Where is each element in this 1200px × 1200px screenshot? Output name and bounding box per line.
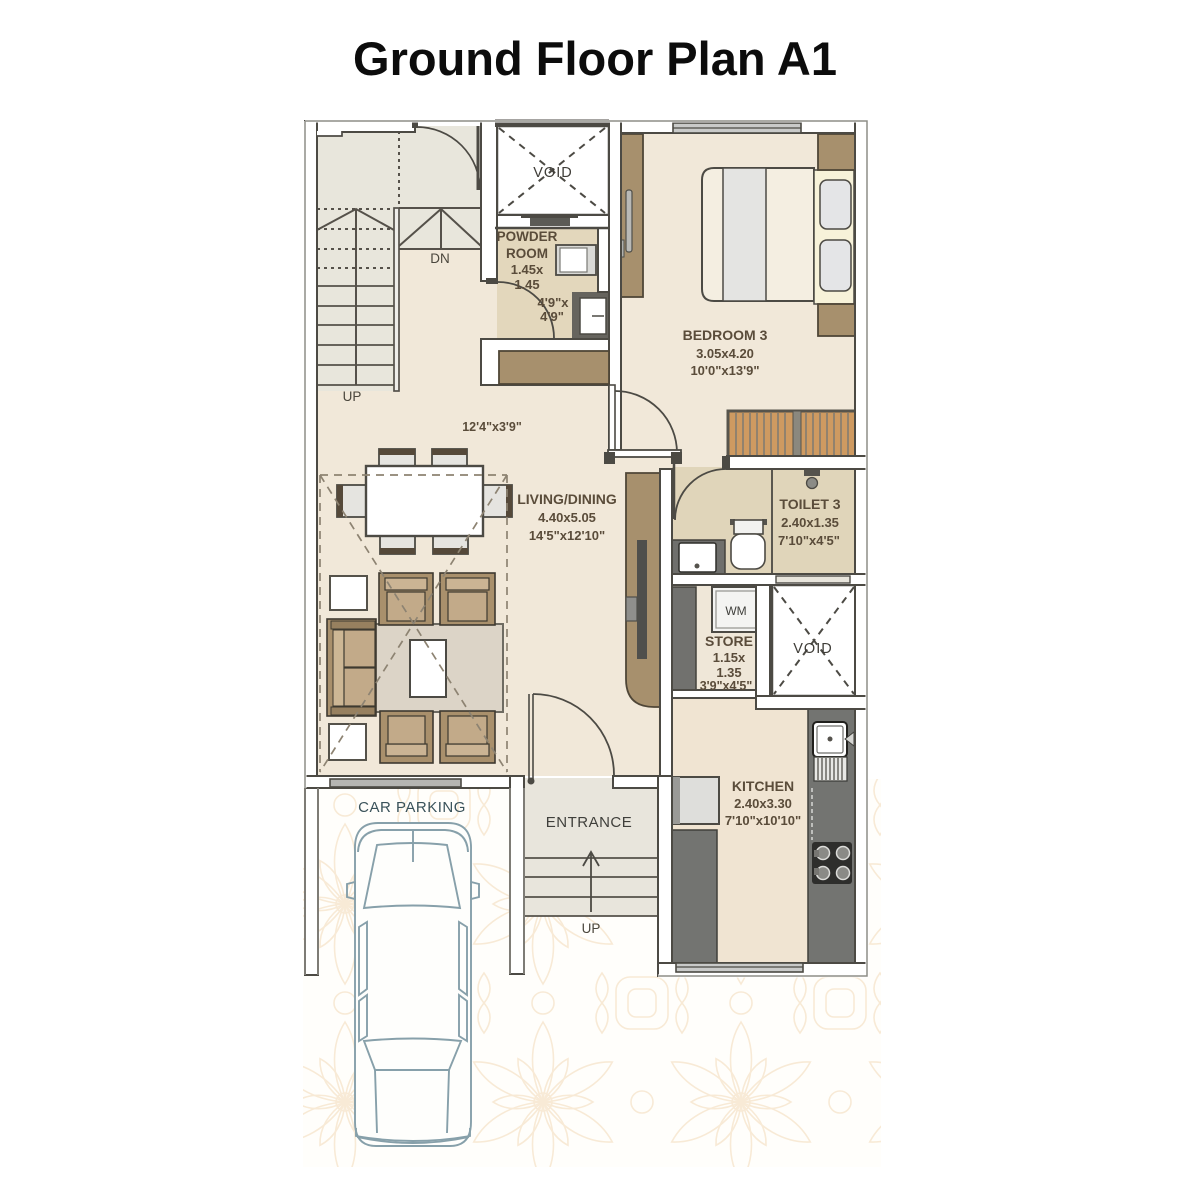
svg-text:TOILET 3: TOILET 3 — [779, 496, 840, 512]
svg-text:VOID: VOID — [793, 641, 832, 657]
svg-text:12'4"x3'9": 12'4"x3'9" — [462, 420, 522, 434]
svg-text:2.40x1.35: 2.40x1.35 — [781, 515, 839, 530]
svg-text:1.45: 1.45 — [514, 277, 539, 292]
svg-text:ENTRANCE: ENTRANCE — [546, 814, 633, 831]
svg-text:STORE: STORE — [705, 633, 753, 649]
svg-text:7'10"x4'5": 7'10"x4'5" — [778, 533, 840, 548]
svg-text:LIVING/DINING: LIVING/DINING — [517, 491, 617, 507]
svg-text:1.45x: 1.45x — [511, 262, 544, 277]
svg-text:Ground Floor Plan A1: Ground Floor Plan A1 — [353, 32, 837, 85]
svg-text:1.35: 1.35 — [716, 665, 741, 680]
svg-text:VOID: VOID — [533, 165, 572, 181]
svg-text:4'9": 4'9" — [540, 309, 564, 324]
svg-text:ROOM: ROOM — [506, 246, 548, 261]
svg-text:DN: DN — [430, 251, 450, 266]
svg-text:7'10"x10'10": 7'10"x10'10" — [725, 813, 801, 828]
svg-text:4'9"x: 4'9"x — [538, 295, 570, 310]
svg-text:UP: UP — [582, 921, 601, 936]
svg-text:2.40x3.30: 2.40x3.30 — [734, 796, 792, 811]
svg-text:1.15x: 1.15x — [713, 650, 746, 665]
svg-text:3'9"x4'5": 3'9"x4'5" — [700, 679, 753, 693]
svg-text:KITCHEN: KITCHEN — [732, 778, 794, 794]
svg-text:4.40x5.05: 4.40x5.05 — [538, 510, 596, 525]
svg-text:POWDER: POWDER — [497, 229, 558, 244]
svg-text:3.05x4.20: 3.05x4.20 — [696, 346, 754, 361]
svg-text:10'0"x13'9": 10'0"x13'9" — [690, 363, 759, 378]
svg-text:14'5"x12'10": 14'5"x12'10" — [529, 528, 605, 543]
svg-text:CAR PARKING: CAR PARKING — [358, 799, 466, 816]
svg-text:WM: WM — [725, 604, 746, 618]
svg-text:UP: UP — [343, 389, 362, 404]
svg-text:BEDROOM 3: BEDROOM 3 — [683, 327, 768, 343]
